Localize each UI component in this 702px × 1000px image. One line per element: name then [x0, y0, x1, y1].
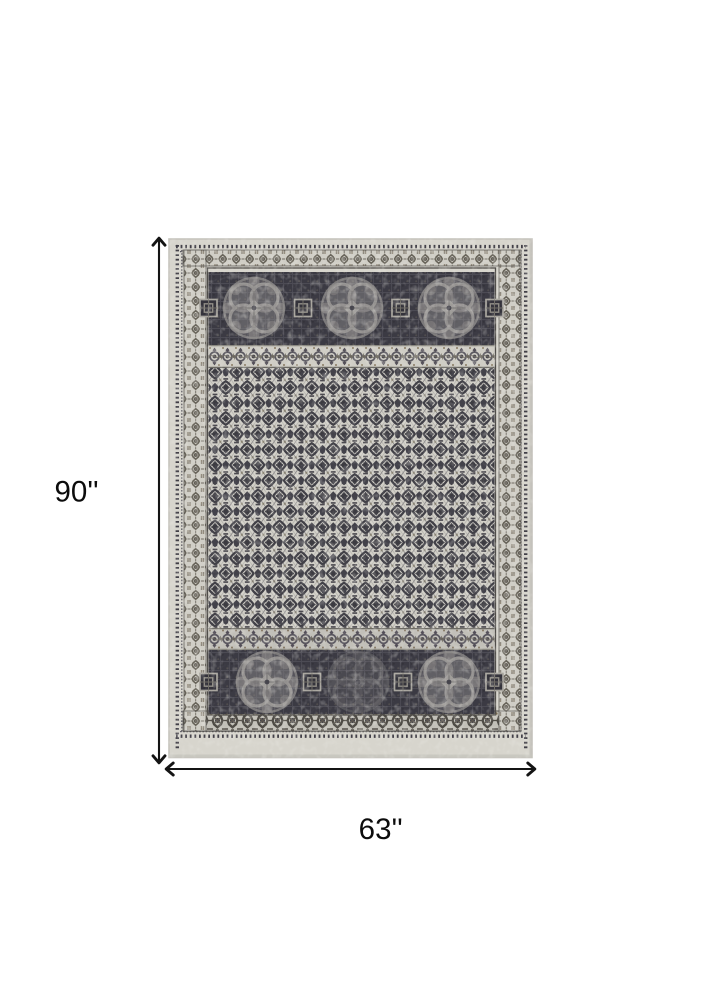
svg-text:90'': 90''	[55, 476, 99, 509]
svg-text:63'': 63''	[359, 813, 403, 846]
